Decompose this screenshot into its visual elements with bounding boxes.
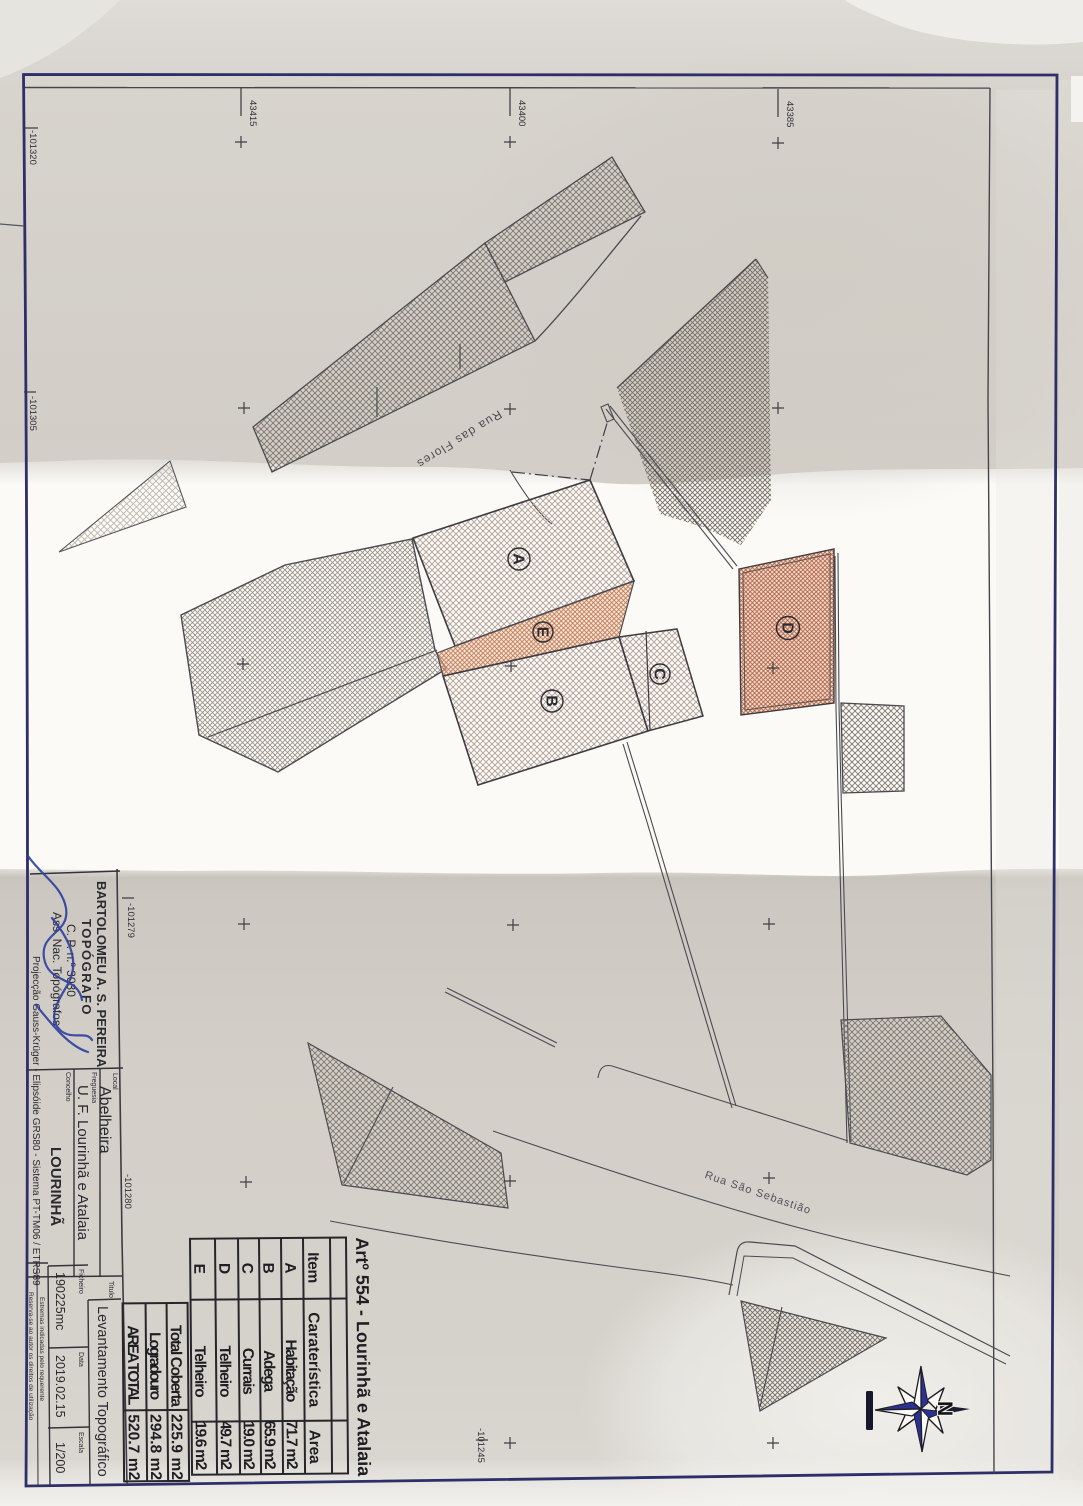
svg-text:Item: Item: [304, 1252, 321, 1283]
svg-text:Levantamento Topográfico: Levantamento Topográfico: [94, 1306, 110, 1477]
svg-text:-101279: -101279: [125, 903, 136, 938]
svg-text:43415: 43415: [247, 100, 258, 126]
svg-text:Total Coberta: Total Coberta: [167, 1325, 185, 1408]
svg-text:2019.02.15: 2019.02.15: [53, 1355, 67, 1418]
svg-text:225.9 m2: 225.9 m2: [168, 1414, 186, 1480]
svg-text:Artº 554 - Lourinhã e Atalaia: Artº 554 - Lourinhã e Atalaia: [352, 1237, 374, 1477]
svg-text:D: D: [215, 1263, 232, 1274]
svg-text:43385: 43385: [784, 101, 795, 127]
svg-text:C: C: [651, 668, 668, 680]
svg-text:D: D: [779, 622, 796, 634]
svg-text:19.0 m2: 19.0 m2: [240, 1421, 257, 1470]
svg-text:Reserva-se ao autor os direito: Reserva-se ao autor os direitos de utili…: [27, 1292, 34, 1421]
svg-text:-101320: -101320: [27, 130, 38, 165]
svg-text:Area: Area: [306, 1430, 323, 1465]
svg-text:Concelho: Concelho: [64, 1072, 71, 1102]
svg-text:71.7 m2: 71.7 m2: [283, 1420, 300, 1469]
svg-text:-101280: -101280: [122, 1174, 133, 1209]
svg-text:Habitação: Habitação: [282, 1339, 300, 1402]
svg-text:Data: Data: [77, 1352, 84, 1367]
svg-text:N: N: [933, 1401, 956, 1416]
svg-text:65.9 m2: 65.9 m2: [261, 1421, 278, 1470]
svg-text:C: C: [238, 1263, 255, 1274]
svg-text:Telheiro: Telheiro: [191, 1346, 208, 1398]
svg-text:U. F. Lourinhã e Atalaia: U. F. Lourinhã e Atalaia: [74, 1085, 91, 1241]
svg-text:LOURINHÃ: LOURINHÃ: [47, 1147, 65, 1226]
svg-text:Caraterística: Caraterística: [305, 1312, 323, 1408]
svg-text:Ficheiro: Ficheiro: [77, 1269, 84, 1294]
svg-text:Telheiro: Telheiro: [216, 1345, 233, 1397]
svg-text:43400: 43400: [516, 100, 527, 126]
svg-text:E: E: [534, 627, 551, 638]
svg-text:Abelheira: Abelheira: [96, 1086, 113, 1154]
svg-text:B: B: [543, 695, 560, 707]
svg-text:Currais: Currais: [239, 1348, 256, 1395]
svg-text:19.6 m2: 19.6 m2: [192, 1421, 209, 1470]
svg-text:B: B: [259, 1262, 276, 1273]
svg-text:Escala: Escala: [77, 1432, 84, 1453]
svg-text:-101245: -101245: [475, 1428, 486, 1463]
svg-text:AREA TOTAL: AREA TOTAL: [124, 1325, 142, 1405]
svg-text:A: A: [281, 1262, 298, 1273]
svg-text:Adega: Adega: [260, 1350, 277, 1393]
svg-text:294.8 m2: 294.8 m2: [147, 1414, 165, 1480]
svg-text:A: A: [510, 553, 527, 565]
svg-text:Logradouro: Logradouro: [146, 1332, 164, 1400]
svg-text:Ass. Nac. Topógrafos: Ass. Nac. Topógrafos: [50, 912, 64, 1026]
svg-text:-101305: -101305: [27, 396, 38, 431]
svg-text:TOPÓGRAFO: TOPÓGRAFO: [79, 919, 94, 1016]
svg-text:Estremas indicadas pelo requer: Estremas indicadas pelo requerente: [38, 1297, 45, 1401]
svg-text:520.7 m2: 520.7 m2: [125, 1414, 143, 1480]
svg-text:E: E: [190, 1263, 207, 1273]
svg-text:Titulo: Titulo: [107, 1281, 114, 1298]
svg-text:49.7 m2: 49.7 m2: [217, 1421, 234, 1470]
svg-text:1/200: 1/200: [53, 1442, 67, 1473]
svg-text:190225mc: 190225mc: [53, 1272, 67, 1330]
svg-text:BARTOLOMEU A. S. PEREIRA: BARTOLOMEU A. S. PEREIRA: [94, 881, 109, 1068]
